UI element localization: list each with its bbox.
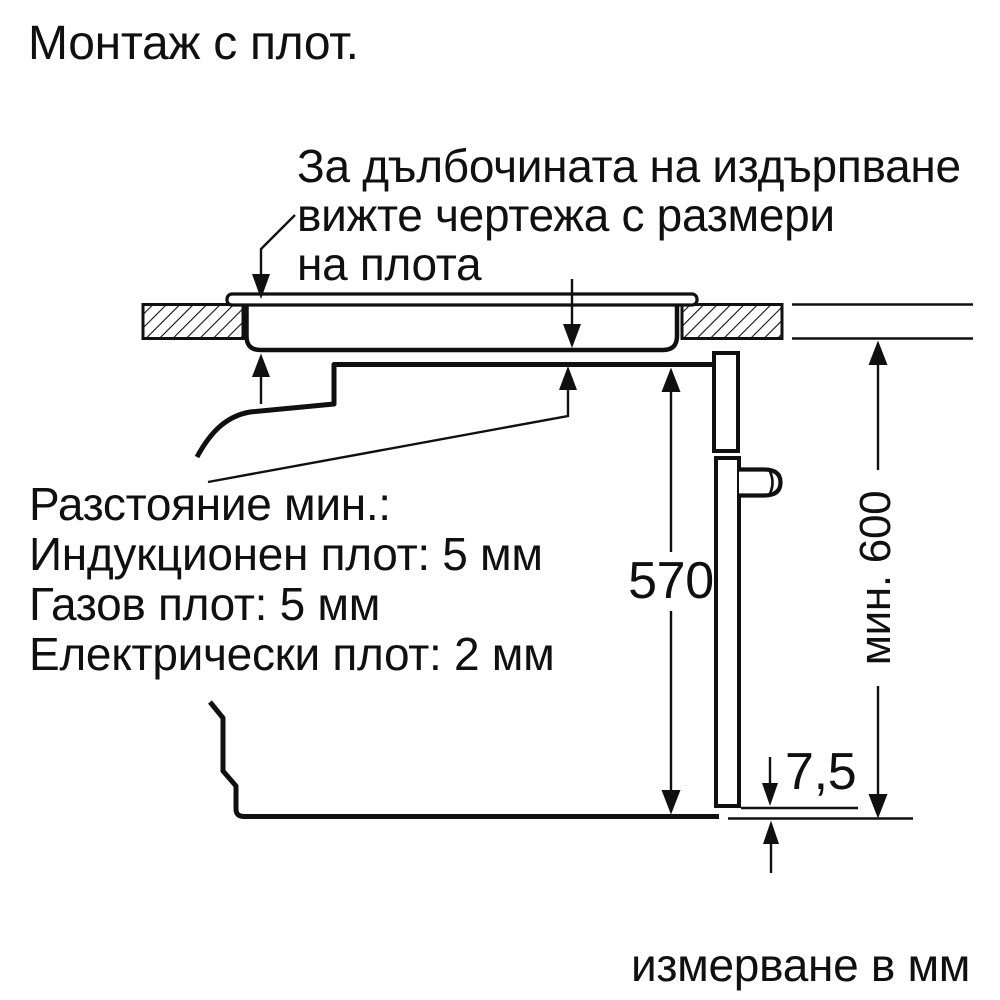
countertop-left-section [143, 305, 243, 339]
dim-75-extension-lines [728, 808, 913, 819]
oven-door [716, 458, 739, 806]
countertop-right-section [682, 305, 782, 339]
clearance-line-4: Електрически плот: 2 мм [29, 629, 554, 679]
installation-diagram-page: Монтаж с плот. За дълбочината на издърпв… [0, 0, 1000, 1000]
cooktop-lip [227, 294, 697, 305]
dim-75-up-arrow [763, 821, 779, 845]
note-line-3: на плота [297, 240, 961, 289]
dim-75-down-arrow [762, 783, 778, 806]
dimension-label-570: 570 [621, 551, 721, 611]
oven-knob [739, 470, 781, 496]
dim-570-arrow-top [662, 368, 681, 393]
dimension-label-min-600: мин. 600 [853, 478, 899, 678]
clearance-line-3: Газов плот: 5 мм [29, 579, 554, 629]
cooktop-body [247, 304, 678, 350]
oven-top-profile [197, 365, 713, 458]
left-gap-arrow [252, 354, 270, 378]
dim-570-arrow-bottom [662, 790, 681, 815]
gap-up-arrow [559, 366, 577, 390]
dimension-label-7-5: 7,5 [785, 742, 856, 802]
note-line-2: вижте чертежа с размери [297, 191, 961, 240]
clearance-line-2: Индукционен плот: 5 мм [29, 529, 554, 579]
pullout-depth-note: За дълбочината на издърпване вижте черте… [297, 142, 961, 289]
oven-control-panel [714, 353, 738, 451]
note-line-1: За дълбочината на издърпване [297, 142, 961, 191]
dim-600-arrow-bottom [869, 794, 888, 819]
units-note: измерване в мм [631, 938, 970, 992]
clearance-note: Разстояние мин.: Индукционен плот: 5 мм … [29, 479, 554, 679]
note-leader-line [261, 215, 295, 276]
dim-600-arrow-top [869, 341, 888, 366]
page-title: Монтаж с плот. [28, 16, 359, 71]
countertop-continuation [792, 305, 973, 339]
clearance-line-1: Разстояние мин.: [29, 479, 554, 529]
oven-bottom-profile [210, 702, 719, 817]
